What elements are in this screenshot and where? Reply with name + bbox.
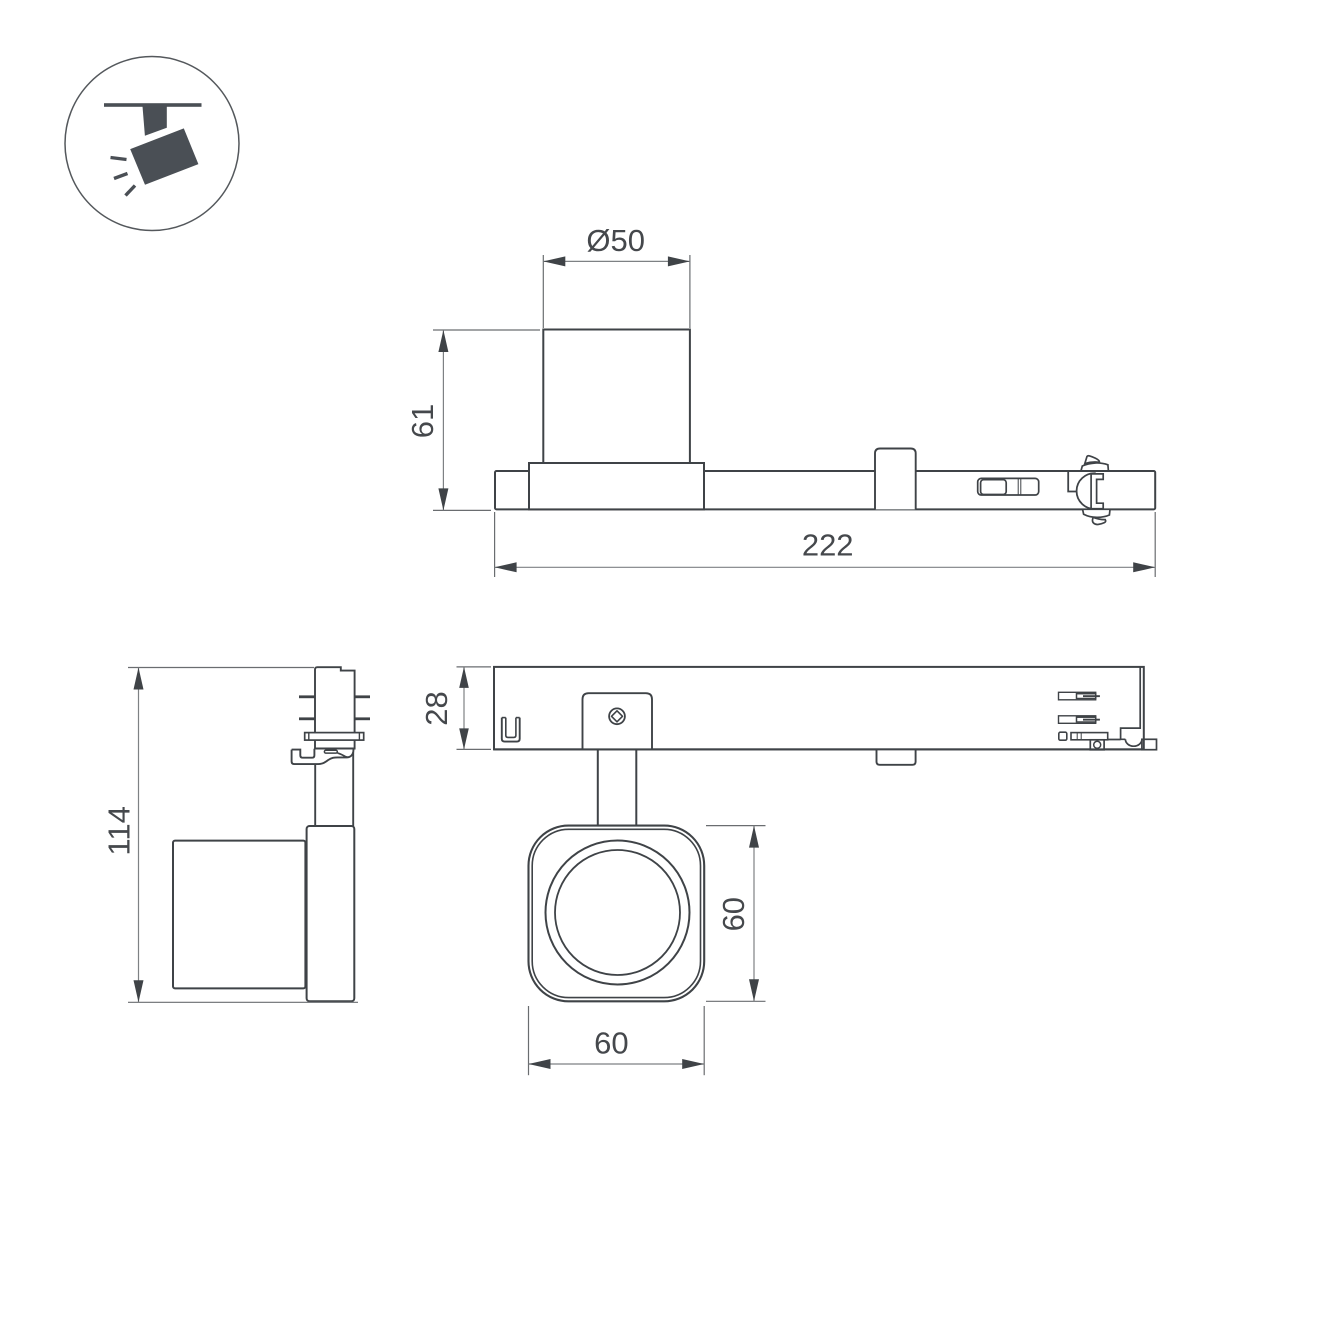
svg-text:114: 114 bbox=[101, 806, 136, 855]
svg-text:Ø50: Ø50 bbox=[586, 223, 645, 258]
svg-text:28: 28 bbox=[419, 691, 454, 725]
svg-text:60: 60 bbox=[594, 1025, 628, 1060]
svg-text:222: 222 bbox=[802, 528, 854, 563]
svg-text:61: 61 bbox=[405, 404, 440, 438]
svg-text:60: 60 bbox=[716, 897, 751, 931]
